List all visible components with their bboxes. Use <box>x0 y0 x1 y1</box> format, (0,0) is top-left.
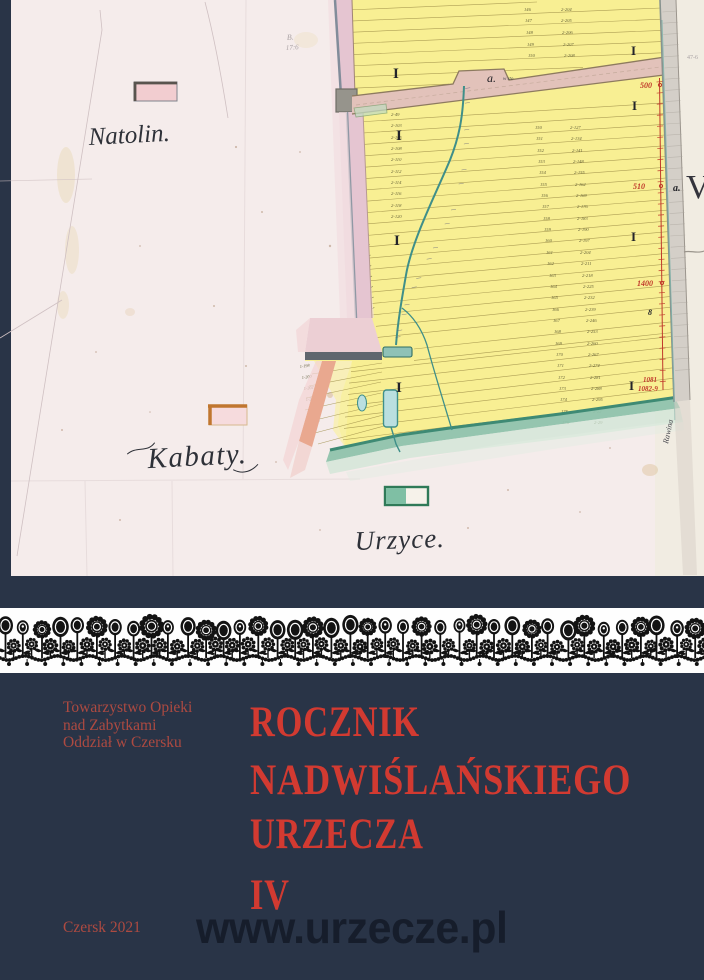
svg-text:2-110: 2-110 <box>391 157 402 162</box>
svg-text:2-239: 2-239 <box>585 307 596 312</box>
svg-text:2-112: 2-112 <box>391 169 402 174</box>
svg-text:1082-9: 1082-9 <box>638 385 658 393</box>
svg-text:149: 149 <box>527 42 535 47</box>
svg-text:172: 172 <box>558 375 566 380</box>
svg-text:157: 157 <box>542 204 550 209</box>
svg-text:I: I <box>631 229 636 244</box>
svg-text:I: I <box>629 378 634 393</box>
svg-text:a.: a. <box>673 183 681 194</box>
svg-text:2-120: 2-120 <box>391 214 402 219</box>
svg-text:2-148: 2-148 <box>573 159 584 164</box>
svg-text:148: 148 <box>526 30 534 35</box>
svg-text:2-232: 2-232 <box>584 295 595 300</box>
svg-text:I: I <box>631 43 636 58</box>
svg-text:2-134: 2-134 <box>571 136 582 141</box>
svg-text:2-288: 2-288 <box>591 386 602 391</box>
svg-text:165: 165 <box>551 295 559 300</box>
svg-text:2-267: 2-267 <box>588 352 599 357</box>
svg-text:2-204: 2-204 <box>561 7 572 12</box>
svg-text:2-162: 2-162 <box>575 182 586 187</box>
svg-text:2-246: 2-246 <box>586 318 597 323</box>
svg-text:510: 510 <box>633 182 645 191</box>
svg-text:152: 152 <box>537 148 545 153</box>
svg-text:I: I <box>396 128 402 144</box>
svg-text:2-190: 2-190 <box>578 227 589 232</box>
svg-text:169: 169 <box>555 341 563 346</box>
svg-text:2-207: 2-207 <box>563 42 574 47</box>
svg-text:2-127: 2-127 <box>570 125 581 130</box>
svg-text:173: 173 <box>559 386 567 391</box>
svg-text:2-176: 2-176 <box>577 204 588 209</box>
svg-text:500: 500 <box>640 81 652 90</box>
svg-text:2-206: 2-206 <box>562 30 573 35</box>
svg-text:I: I <box>396 380 402 396</box>
svg-text:158: 158 <box>543 216 551 221</box>
svg-text:B.: B. <box>287 33 295 42</box>
svg-text:Urzyce.: Urzyce. <box>354 523 445 556</box>
svg-text:a.: a. <box>487 71 496 85</box>
svg-text:162: 162 <box>547 261 555 266</box>
svg-text:2-141: 2-141 <box>572 148 583 153</box>
svg-text:Natolin.: Natolin. <box>87 120 171 151</box>
svg-text:146: 146 <box>524 7 532 12</box>
svg-text:2-274: 2-274 <box>589 363 600 368</box>
svg-text:168: 168 <box>554 329 562 334</box>
svg-text:2-205: 2-205 <box>561 18 572 23</box>
svg-text:2-114: 2-114 <box>391 180 402 185</box>
svg-text:1400: 1400 <box>637 279 653 288</box>
svg-text:171: 171 <box>557 363 564 368</box>
svg-text:151: 151 <box>536 136 543 141</box>
svg-text:167: 167 <box>553 318 561 323</box>
svg-text:2-204: 2-204 <box>580 250 591 255</box>
svg-text:I: I <box>393 66 399 82</box>
svg-text:154: 154 <box>539 170 547 175</box>
svg-text:I: I <box>394 233 400 249</box>
svg-text:166: 166 <box>552 307 560 312</box>
svg-text:47-6: 47-6 <box>687 55 698 61</box>
svg-text:2-197: 2-197 <box>579 238 590 243</box>
svg-text:170: 170 <box>556 352 564 357</box>
svg-text:153: 153 <box>538 159 546 164</box>
svg-text:8: 8 <box>648 308 652 317</box>
svg-text:161: 161 <box>546 250 553 255</box>
svg-text:174: 174 <box>560 397 568 402</box>
svg-text:1081: 1081 <box>643 376 657 384</box>
svg-text:I: I <box>632 98 637 113</box>
svg-text:163: 163 <box>549 273 557 278</box>
svg-text:2-281: 2-281 <box>590 375 601 380</box>
svg-text:2-208: 2-208 <box>564 53 575 58</box>
svg-text:2-108: 2-108 <box>391 146 402 151</box>
svg-text:Kabaty.: Kabaty. <box>146 438 248 475</box>
svg-text:V: V <box>686 169 704 206</box>
svg-text:159: 159 <box>544 227 552 232</box>
svg-text:w sto: w sto <box>503 77 514 82</box>
svg-text:160: 160 <box>545 238 553 243</box>
svg-text:2-211: 2-211 <box>581 261 591 266</box>
svg-text:2-49: 2-49 <box>391 112 400 117</box>
svg-text:2-183: 2-183 <box>577 216 588 221</box>
svg-text:156: 156 <box>541 193 549 198</box>
svg-text:147: 147 <box>525 18 533 23</box>
svg-text:150: 150 <box>535 125 543 130</box>
svg-text:2-118: 2-118 <box>391 203 402 208</box>
svg-text:2-225: 2-225 <box>583 284 594 289</box>
svg-text:150: 150 <box>528 53 536 58</box>
svg-text:2-116: 2-116 <box>391 191 402 196</box>
svg-text:2-260: 2-260 <box>587 341 598 346</box>
svg-text:164: 164 <box>550 284 558 289</box>
svg-text:17:6: 17:6 <box>286 43 300 52</box>
svg-text:2-155: 2-155 <box>574 170 585 175</box>
svg-text:2-253: 2-253 <box>587 329 598 334</box>
svg-text:2-218: 2-218 <box>582 273 593 278</box>
svg-text:2-295: 2-295 <box>592 397 603 402</box>
svg-text:2-169: 2-169 <box>576 193 587 198</box>
svg-text:155: 155 <box>540 182 548 187</box>
